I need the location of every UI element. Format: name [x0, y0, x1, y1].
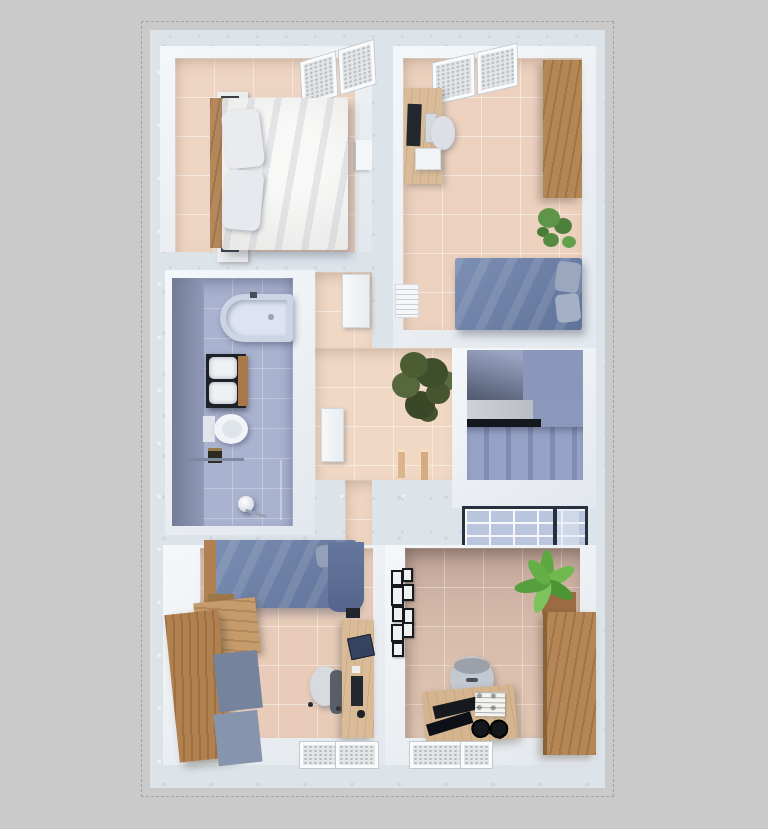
stairs-upper-flight: [467, 350, 523, 402]
mouse: [357, 710, 365, 718]
chair-wheel: [336, 706, 341, 711]
guest-chair-seam: [466, 678, 478, 682]
hallway-tree: [376, 342, 456, 432]
guest-chair-back: [454, 658, 490, 674]
towel-rail: [188, 458, 244, 461]
writing-desk: [422, 684, 518, 746]
toilet-seat: [222, 420, 242, 438]
pillow: [554, 260, 582, 293]
stairwell: [467, 350, 583, 480]
pillow: [221, 168, 264, 231]
potted-plant: [528, 202, 580, 260]
window-pane: [410, 742, 463, 768]
stairs-landing: [467, 400, 533, 421]
pillow: [221, 108, 266, 170]
stairs-landing-edge: [467, 419, 541, 427]
tree-foliage: [400, 352, 428, 378]
vanity-wood-edge: [238, 356, 248, 406]
desk-shelf-item: [346, 608, 360, 618]
glass-panel-side: [557, 509, 579, 545]
headphone-cup: [470, 718, 491, 739]
pillow: [555, 293, 582, 323]
stairs-upper-wall: [523, 350, 583, 402]
plant-foliage: [538, 208, 560, 228]
printer: [415, 148, 441, 170]
chair-wheel: [308, 702, 313, 707]
computer-monitor: [406, 104, 421, 146]
sink: [209, 357, 237, 379]
papers: [475, 692, 505, 717]
floor-candle: [398, 452, 405, 478]
window-pane: [336, 742, 378, 768]
wall-shelf: [356, 140, 372, 170]
picture-frame: [392, 642, 404, 657]
draped-blanket: [328, 542, 364, 612]
wardrobe: [543, 60, 582, 198]
open-door-leaf: [342, 274, 370, 328]
sideboard: [543, 612, 596, 755]
floor-plan-stage: [0, 0, 768, 829]
picture-frame: [402, 622, 414, 638]
bright-potted-plant: [512, 548, 584, 622]
bathtub-faucet: [250, 292, 257, 298]
stairs-lower-steps: [467, 427, 583, 480]
picture-frame: [402, 568, 413, 582]
bathroom-door-leaf: [321, 408, 344, 462]
bathtub-drain: [268, 314, 274, 320]
floor-candle: [421, 452, 428, 480]
desk-chair: [431, 116, 455, 150]
single-bed-blue: [204, 540, 356, 608]
wardrobe-side-panel: [213, 710, 262, 766]
desk-paper: [352, 666, 360, 673]
window-pane: [300, 742, 338, 768]
picture-frame: [402, 584, 414, 601]
wardrobe-side-panel: [213, 650, 263, 712]
hallway-doorway-floor: [345, 480, 372, 548]
bathroom-wall-tiles: [172, 278, 204, 526]
window-pane: [461, 742, 492, 768]
louvered-panel: [395, 284, 419, 318]
shower-glass-line: [280, 460, 282, 520]
bathtub-basin: [226, 300, 287, 336]
sink: [209, 382, 237, 404]
keyboard: [351, 676, 363, 706]
apartment-floor-plan: [150, 30, 605, 788]
